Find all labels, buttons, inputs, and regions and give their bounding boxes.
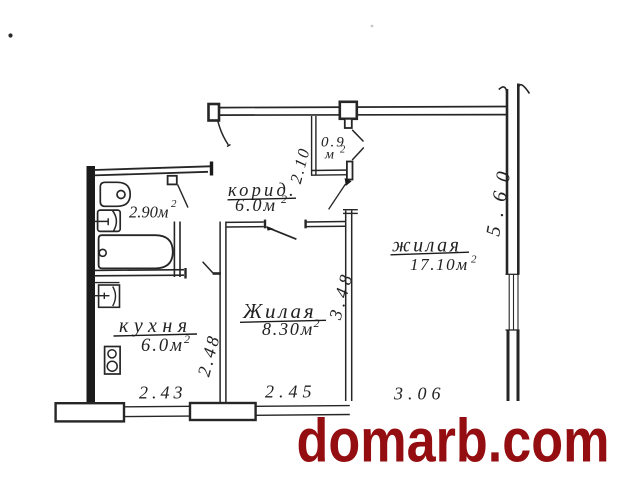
svg-text:2: 2 — [471, 254, 477, 266]
svg-text:2: 2 — [171, 198, 177, 210]
svg-text:м: м — [324, 148, 334, 163]
svg-text:2: 2 — [314, 316, 320, 330]
svg-text:domarb.com: domarb.com — [297, 408, 610, 476]
svg-text:2: 2 — [184, 332, 190, 346]
svg-text:2.45: 2.45 — [265, 382, 317, 402]
svg-text:2: 2 — [281, 192, 287, 206]
svg-text:6.0м: 6.0м — [141, 336, 184, 356]
svg-text:5.60: 5.60 — [482, 160, 517, 238]
svg-text:2.90м: 2.90м — [129, 203, 169, 222]
svg-text:2: 2 — [340, 145, 346, 156]
svg-text:2.43: 2.43 — [139, 383, 187, 403]
svg-text:6.0м: 6.0м — [235, 195, 277, 215]
svg-text:8.30м: 8.30м — [262, 319, 314, 339]
svg-text:3.06: 3.06 — [393, 384, 446, 404]
svg-text:2.10: 2.10 — [286, 145, 314, 186]
svg-text:17.10м: 17.10м — [410, 255, 469, 274]
